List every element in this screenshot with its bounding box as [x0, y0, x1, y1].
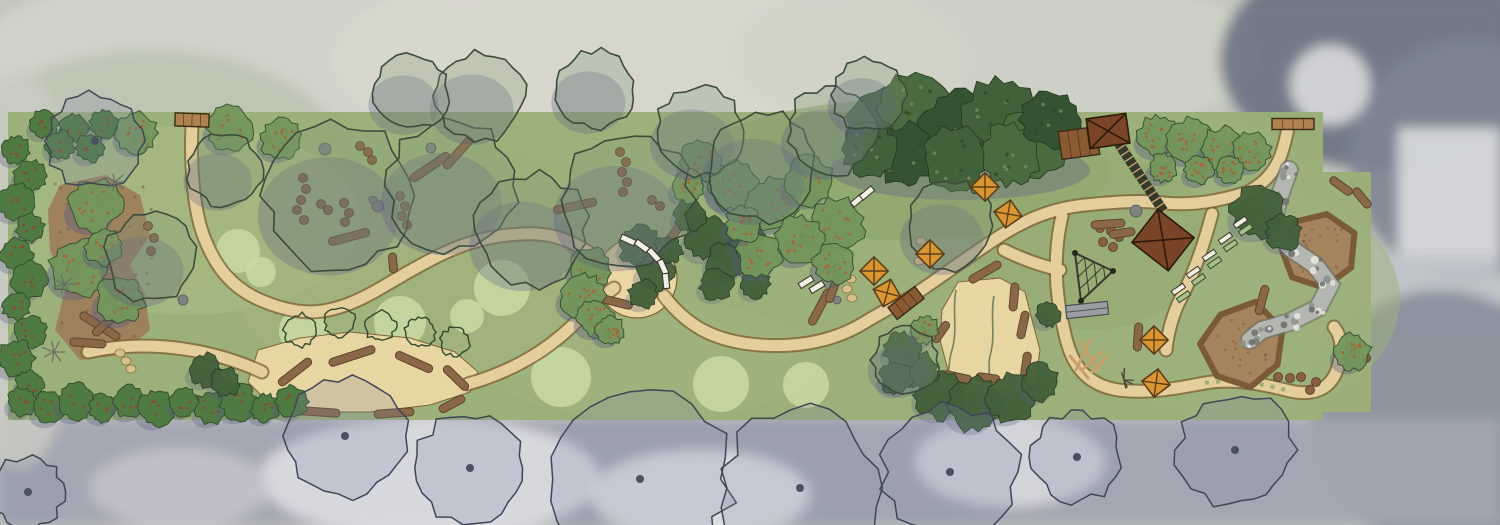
blossom-speck — [1197, 171, 1200, 174]
blossom-speck — [828, 253, 831, 256]
existing-tree-trunk-dot — [946, 468, 954, 476]
leaf-highlight — [93, 251, 96, 254]
rock-pebble — [1287, 175, 1291, 179]
forest-texture — [1024, 165, 1028, 169]
shrub-speck — [72, 403, 75, 406]
leaf-highlight — [67, 266, 70, 269]
leaf-highlight — [76, 262, 79, 265]
tower-platform-upper — [1086, 113, 1130, 148]
mound-texture — [1238, 328, 1241, 331]
forest-texture — [1011, 153, 1015, 157]
blossom-speck — [822, 209, 825, 212]
leaf-highlight — [1352, 349, 1355, 352]
blossom-speck — [845, 217, 848, 220]
blossom-speck — [1185, 143, 1188, 146]
blossom-speck — [1248, 161, 1251, 164]
mound-texture — [1242, 322, 1245, 325]
stepping-stump — [1286, 374, 1295, 383]
leaf-highlight — [832, 265, 835, 268]
blossom-speck — [81, 212, 84, 215]
blossom-speck — [827, 272, 830, 275]
bench — [662, 273, 670, 289]
lawn-mound-circle — [246, 257, 276, 287]
blossom-speck — [793, 235, 796, 238]
forest-texture — [1006, 99, 1010, 103]
rock-pebble — [1240, 340, 1246, 346]
shrub-speck — [268, 403, 271, 406]
blossom-speck — [579, 295, 582, 298]
blossom-speck — [768, 262, 771, 265]
existing-tree-trunk-dot — [91, 137, 99, 145]
shrub-speck — [130, 398, 133, 401]
blossom-speck — [732, 228, 735, 231]
shrub-speck — [23, 281, 26, 284]
net-post — [1072, 250, 1078, 256]
blossom-speck — [844, 271, 847, 274]
forest-texture — [1041, 103, 1045, 107]
leaf-highlight — [574, 298, 577, 301]
blossom-speck — [1255, 143, 1258, 146]
blossom-speck — [1145, 136, 1148, 139]
leaf-highlight — [584, 266, 587, 269]
blossom-speck — [1200, 162, 1203, 165]
stepping-stump — [1109, 243, 1118, 252]
existing-tree-trunk-dot — [1231, 446, 1239, 454]
forest-texture — [963, 144, 967, 148]
leaf-highlight — [1193, 169, 1196, 172]
blossom-speck — [83, 209, 86, 212]
blossom-speck — [750, 233, 753, 236]
blossom-speck — [284, 136, 287, 139]
entry-deck — [1272, 119, 1314, 130]
shrub-speck — [13, 354, 16, 357]
rock-pebble — [1281, 321, 1288, 328]
leaf-highlight — [750, 227, 753, 230]
mulch-texture — [86, 309, 89, 312]
leaf-highlight — [1246, 146, 1249, 149]
blossom-speck — [1185, 140, 1188, 143]
blossom-speck — [1152, 139, 1155, 142]
blossom-speck — [1160, 128, 1163, 131]
leaf-highlight — [804, 234, 807, 237]
shrub-speck — [16, 199, 19, 202]
shrub-speck — [20, 307, 23, 310]
rock-pebble — [1284, 165, 1288, 169]
blossom-speck — [72, 259, 75, 262]
leaf-highlight — [799, 237, 802, 240]
stepping-stone — [126, 365, 136, 373]
blossom-speck — [107, 212, 110, 215]
forest-texture — [1040, 122, 1044, 126]
shrub-speck — [10, 152, 13, 155]
mulch-texture — [67, 227, 70, 230]
forest-texture — [967, 176, 971, 180]
forest-texture — [1047, 123, 1051, 127]
shrub-speck — [22, 224, 25, 227]
leaf-highlight — [693, 185, 696, 188]
photo-blob — [1398, 128, 1500, 268]
shrub-speck — [22, 245, 25, 248]
forest-texture — [1005, 168, 1009, 172]
stepping-stump — [1306, 386, 1315, 395]
shrub-speck — [35, 168, 38, 171]
blossom-speck — [579, 268, 582, 271]
leaf-highlight — [612, 328, 615, 331]
mound-texture — [1234, 347, 1237, 350]
leaf-highlight — [1345, 357, 1348, 360]
blossom-speck — [1145, 132, 1148, 135]
leaf-highlight — [588, 316, 591, 319]
leaf-highlight — [86, 199, 89, 202]
mound-texture — [1335, 234, 1338, 237]
blossom-speck — [221, 124, 224, 127]
leaf-highlight — [1219, 142, 1222, 145]
stepping-stump — [1297, 373, 1306, 382]
blossom-speck — [1181, 137, 1184, 140]
log — [1091, 219, 1125, 229]
log-edging — [1351, 233, 1354, 267]
shrub-speck — [25, 402, 28, 405]
blossom-speck — [1221, 171, 1224, 174]
leaf-highlight — [842, 217, 845, 220]
blossom-speck — [1254, 140, 1257, 143]
shrub-speck — [134, 405, 137, 408]
leaf-highlight — [838, 212, 841, 215]
mound-texture — [1302, 270, 1305, 273]
shrub-speck — [107, 407, 110, 410]
mound-texture — [1336, 239, 1339, 242]
forest-texture — [960, 139, 964, 143]
mulch-texture — [60, 322, 63, 325]
leaf-highlight — [108, 301, 111, 304]
blossom-speck — [280, 132, 283, 135]
leaf-highlight — [927, 331, 930, 334]
blossom-speck — [603, 307, 606, 310]
leaf-highlight — [1198, 135, 1201, 138]
mulch-texture — [59, 187, 62, 190]
blossom-speck — [568, 292, 571, 295]
shrub-speck — [38, 123, 41, 126]
forest-texture — [1053, 108, 1057, 112]
forest-texture — [935, 170, 939, 174]
rock-pebble — [1268, 327, 1272, 331]
blossom-speck — [687, 181, 690, 184]
shrub-speck — [157, 404, 160, 407]
shrub-speck — [31, 285, 34, 288]
blossom-speck — [691, 191, 694, 194]
blossom-speck — [1233, 172, 1236, 175]
blossom-speck — [839, 267, 842, 270]
log — [388, 253, 398, 274]
shrub-speck — [203, 399, 206, 402]
shrub-speck — [12, 307, 15, 310]
blossom-speck — [598, 277, 601, 280]
blossom-speck — [1149, 123, 1152, 126]
blossom-speck — [121, 307, 124, 310]
forest-texture — [976, 115, 980, 119]
leaf-highlight — [1182, 133, 1185, 136]
blossom-speck — [1341, 351, 1344, 354]
rock-pebble — [1251, 329, 1258, 336]
leaf-highlight — [1255, 147, 1258, 150]
leaf-highlight — [284, 128, 287, 131]
shrub-speck — [69, 395, 72, 398]
leaf-highlight — [746, 255, 749, 258]
blossom-speck — [90, 191, 93, 194]
leaf-highlight — [85, 266, 88, 269]
blossom-speck — [1359, 346, 1362, 349]
rock-pebble — [1309, 306, 1315, 312]
leaf-highlight — [1165, 165, 1168, 168]
blossom-speck — [766, 263, 769, 266]
shrub-speck — [178, 406, 181, 409]
blossom-speck — [100, 256, 103, 259]
lawn-mound-circle — [783, 362, 829, 408]
blossom-speck — [1223, 168, 1226, 171]
blossom-speck — [1156, 175, 1159, 178]
mound-texture — [1232, 340, 1235, 343]
rock-pebble — [1294, 173, 1297, 176]
shrub-speck — [96, 403, 99, 406]
forest-texture — [907, 111, 911, 115]
blossom-speck — [823, 228, 826, 231]
mulch-texture — [133, 335, 136, 338]
forest-texture — [1005, 153, 1009, 157]
blossom-speck — [1353, 355, 1356, 358]
leaf-highlight — [281, 141, 284, 144]
entry-gate — [175, 113, 209, 127]
mound-texture — [1311, 228, 1314, 231]
shrub-speck — [24, 329, 27, 332]
blossom-speck — [793, 249, 796, 252]
forest-texture — [904, 111, 908, 115]
blossom-speck — [616, 335, 619, 338]
mound-texture — [1235, 342, 1238, 345]
leaf-highlight — [275, 131, 278, 134]
blossom-speck — [1162, 167, 1165, 170]
blossom-speck — [595, 307, 598, 310]
leaf-highlight — [1156, 137, 1159, 140]
leaf-highlight — [1167, 162, 1170, 165]
leaf-highlight — [1225, 147, 1228, 150]
leaf-highlight — [921, 326, 924, 329]
boulder — [1130, 205, 1142, 217]
leaf-highlight — [608, 334, 611, 337]
mound-texture — [1326, 227, 1329, 230]
leaf-highlight — [1253, 150, 1256, 153]
blossom-speck — [826, 264, 829, 267]
blossom-speck — [848, 233, 851, 236]
leaf-highlight — [1229, 175, 1232, 178]
shrub-speck — [17, 155, 20, 158]
stepping-stump — [1312, 378, 1321, 387]
forest-texture — [944, 177, 948, 181]
shrub-speck — [264, 409, 267, 412]
existing-tree-trunk-dot — [341, 432, 349, 440]
leaf-highlight — [1226, 164, 1229, 167]
blossom-speck — [805, 224, 808, 227]
forest-texture — [918, 144, 922, 148]
blossom-speck — [1222, 161, 1225, 164]
leaf-highlight — [1166, 169, 1169, 172]
leaf-highlight — [829, 268, 832, 271]
rock-pebble — [1284, 315, 1287, 318]
shrub-speck — [47, 413, 50, 416]
leaf-highlight — [1228, 139, 1231, 142]
shrub-speck — [24, 351, 27, 354]
shrub-speck — [29, 281, 32, 284]
blossom-speck — [95, 241, 98, 244]
rock-pebble — [1315, 310, 1319, 314]
rock-pebble — [1294, 313, 1301, 320]
shrub-speck — [31, 276, 34, 279]
shrub-speck — [18, 354, 21, 357]
stepping-stone — [115, 349, 125, 357]
rock-pebble — [1319, 258, 1323, 262]
existing-tree-trunk-dot — [796, 484, 804, 492]
rock-pebble — [1253, 338, 1260, 345]
shrub-speck — [50, 400, 53, 403]
shrub-speck — [27, 385, 30, 388]
mound-texture — [1216, 334, 1219, 337]
mulch-texture — [150, 208, 153, 211]
leaf-highlight — [80, 201, 83, 204]
leaf-highlight — [70, 270, 73, 273]
shrub-speck — [285, 397, 288, 400]
shrub-speck — [19, 397, 22, 400]
blossom-speck — [1181, 147, 1184, 150]
blossom-speck — [91, 219, 94, 222]
blossom-speck — [750, 260, 753, 263]
leaf-highlight — [83, 194, 86, 197]
leaf-highlight — [1190, 140, 1193, 143]
leaf-highlight — [79, 261, 82, 264]
shrub-speck — [186, 407, 189, 410]
leaf-highlight — [1153, 125, 1156, 128]
shrub-speck — [23, 171, 26, 174]
shrub-speck — [28, 178, 31, 181]
blossom-speck — [1150, 145, 1153, 148]
rock-pebble — [1293, 324, 1300, 331]
leaf-highlight — [1190, 163, 1193, 166]
mound-texture — [1249, 371, 1252, 374]
blossom-speck — [788, 248, 791, 251]
blossom-speck — [587, 308, 590, 311]
blossom-speck — [1212, 138, 1215, 141]
forest-texture — [1003, 165, 1007, 169]
forest-texture — [984, 91, 988, 95]
existing-tree-trunk-dot — [636, 475, 644, 483]
leaf-highlight — [1349, 344, 1352, 347]
leaf-highlight — [1223, 175, 1226, 178]
rock-pebble — [1330, 280, 1336, 286]
blossom-speck — [142, 120, 145, 123]
mound-texture — [1264, 358, 1267, 361]
blossom-speck — [1178, 133, 1181, 136]
existing-tree-trunk-dot — [1073, 453, 1081, 461]
shrub-speck — [31, 335, 34, 338]
mound-texture — [1224, 348, 1227, 351]
rock-pebble — [1311, 256, 1319, 264]
shrub-speck — [154, 413, 157, 416]
shrub-speck — [84, 406, 87, 409]
shrub-speck — [43, 399, 46, 402]
blossom-speck — [745, 233, 748, 236]
existing-tree-trunk-dot — [466, 464, 474, 472]
blossom-speck — [599, 308, 602, 311]
blossom-speck — [91, 210, 94, 213]
rock-pebble — [1322, 311, 1326, 315]
blossom-speck — [1238, 147, 1241, 150]
blossom-speck — [1193, 133, 1196, 136]
leaf-highlight — [591, 323, 594, 326]
leaf-highlight — [833, 270, 836, 273]
leaf-highlight — [1230, 163, 1233, 166]
blossom-speck — [1240, 157, 1243, 160]
shrub-speck — [122, 405, 125, 408]
forest-texture — [994, 172, 998, 176]
mound-texture — [1230, 319, 1233, 322]
shrub-speck — [10, 201, 13, 204]
blossom-speck — [583, 288, 586, 291]
photo-blob — [90, 448, 270, 525]
leaf-highlight — [694, 180, 697, 183]
blossom-speck — [91, 281, 94, 284]
blossom-speck — [1203, 164, 1206, 167]
leaf-highlight — [1146, 139, 1149, 142]
blossom-speck — [607, 329, 610, 332]
shrub-speck — [35, 389, 38, 392]
blossom-speck — [273, 146, 276, 149]
blossom-speck — [843, 261, 846, 264]
blossom-speck — [812, 236, 815, 239]
shrub-speck — [105, 410, 108, 413]
mound-texture — [1265, 368, 1268, 371]
mound-texture — [1264, 354, 1267, 357]
blossom-speck — [756, 249, 759, 252]
blossom-speck — [923, 321, 926, 324]
shrub-speck — [211, 412, 214, 415]
shrub-speck — [14, 246, 17, 249]
blossom-speck — [617, 331, 620, 334]
leaf-highlight — [98, 206, 101, 209]
forest-texture — [878, 136, 882, 140]
blossom-speck — [612, 333, 615, 336]
shrub-speck — [151, 401, 154, 404]
leaf-highlight — [1211, 145, 1214, 148]
shrub-speck — [25, 230, 28, 233]
blossom-speck — [92, 276, 95, 279]
leaf-highlight — [843, 220, 846, 223]
mound-texture — [1335, 266, 1338, 269]
blossom-speck — [818, 181, 821, 184]
stepping-stone — [847, 294, 857, 302]
blossom-speck — [63, 255, 66, 258]
leaf-highlight — [96, 195, 99, 198]
blossom-speck — [824, 257, 827, 260]
mound-texture — [1334, 228, 1337, 231]
stepping-stone — [121, 357, 131, 365]
blossom-speck — [1194, 161, 1197, 164]
blossom-speck — [1159, 171, 1162, 174]
existing-tree-trunk-dot — [24, 488, 32, 496]
blossom-speck — [1358, 343, 1361, 346]
leaf-highlight — [1200, 173, 1203, 176]
shrub-speck — [189, 400, 192, 403]
stepping-stump — [1274, 373, 1283, 382]
leaf-highlight — [117, 308, 120, 311]
blossom-speck — [923, 331, 926, 334]
